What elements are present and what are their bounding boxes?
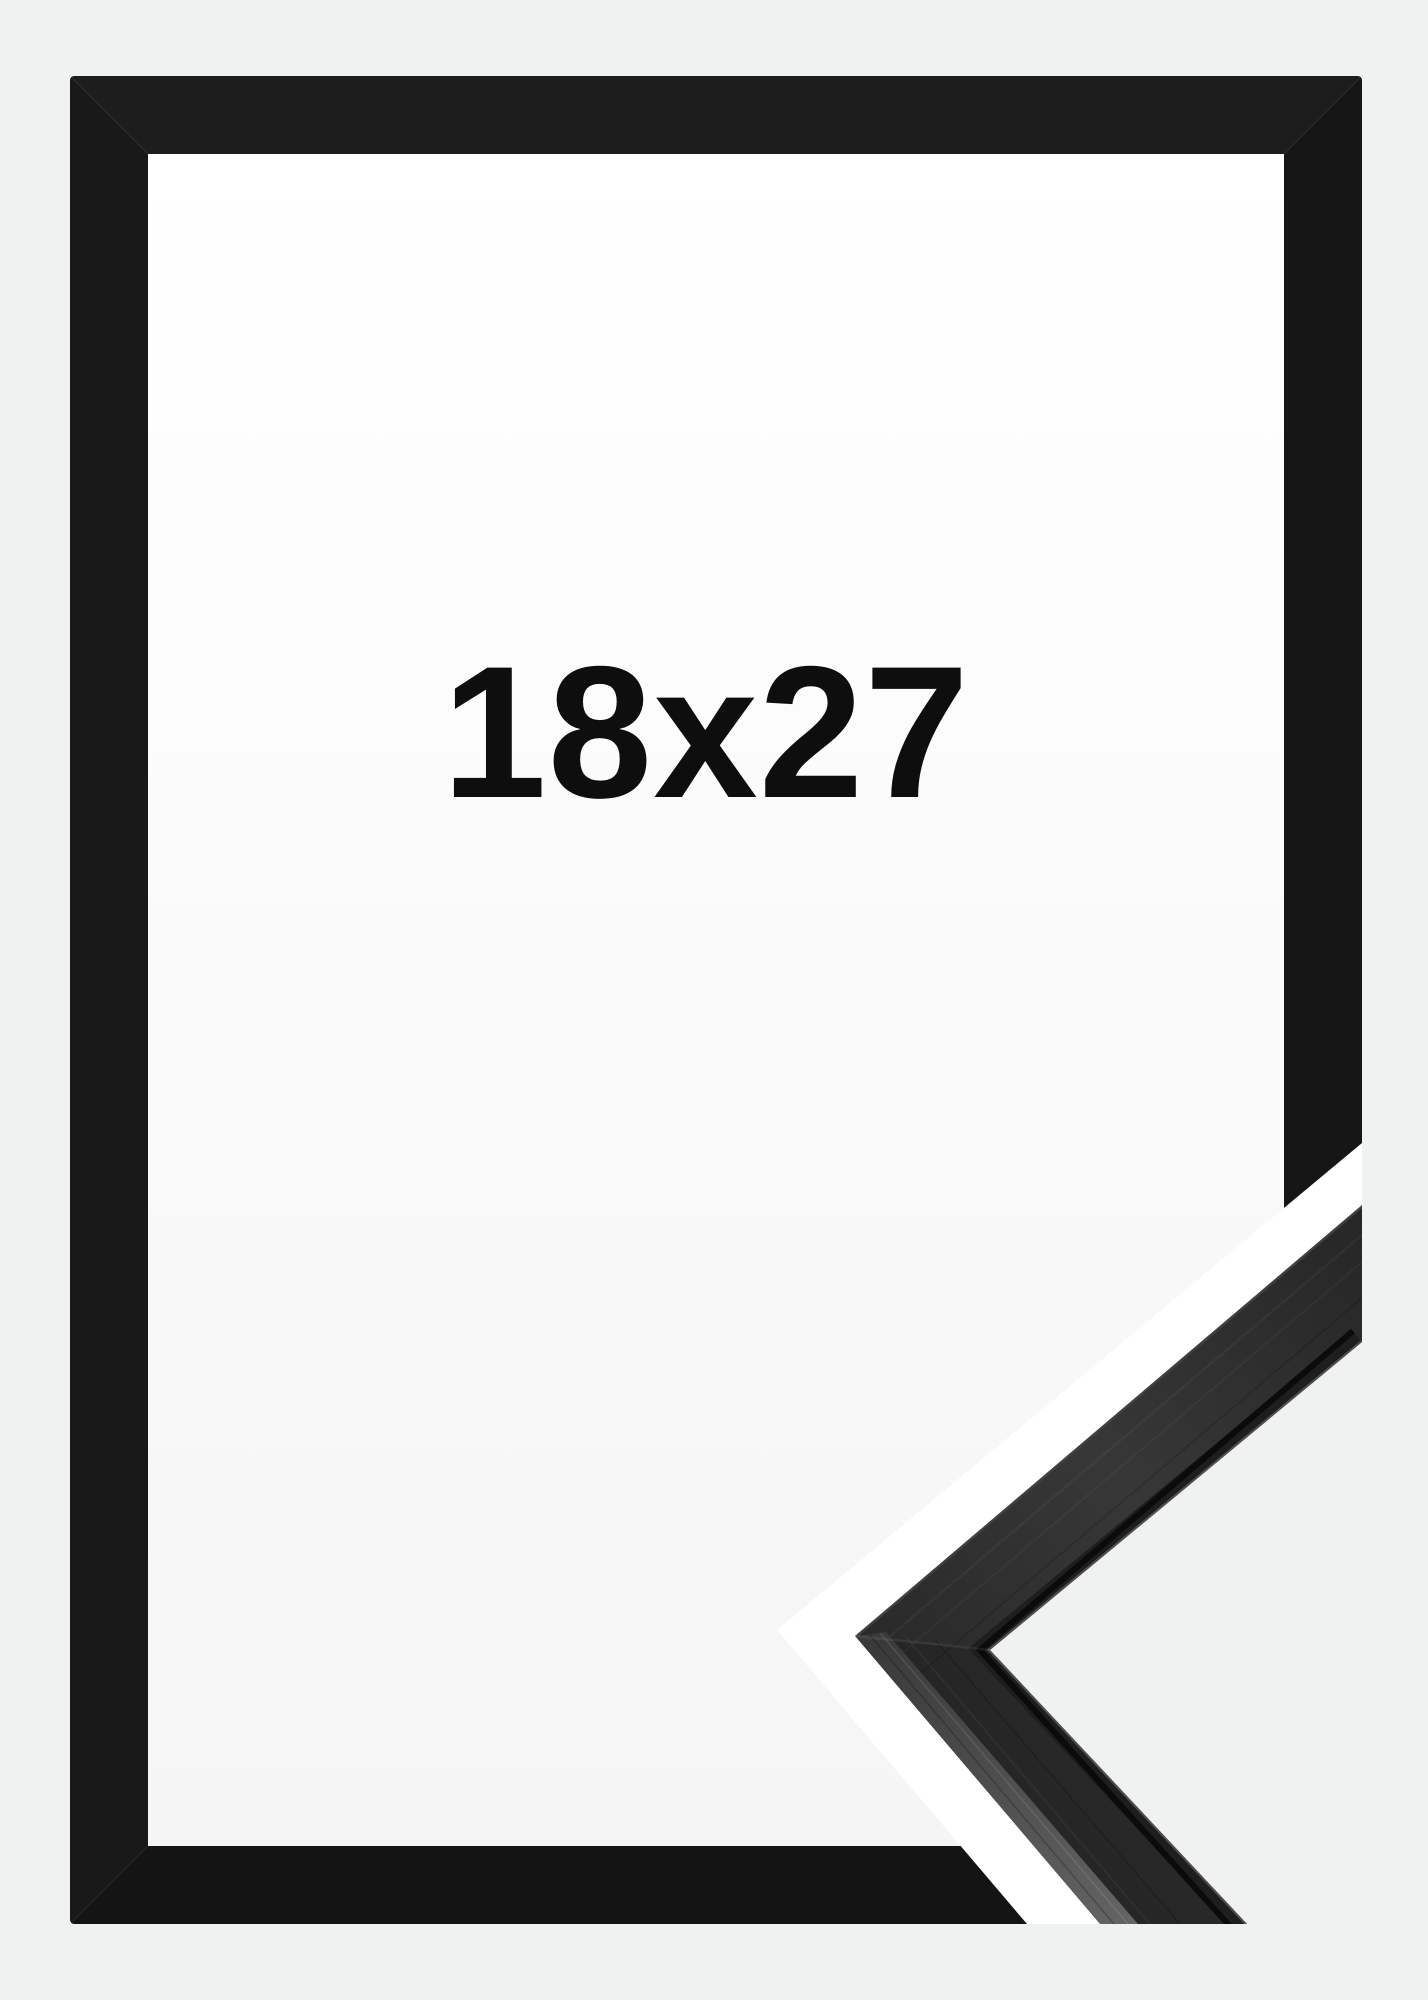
frame-left-rail-shading (70, 76, 148, 1924)
size-label: 18x27 (442, 627, 970, 837)
product-image-canvas: 18x27 (0, 0, 1428, 2000)
frame-product-photo: 18x27 (0, 0, 1428, 2000)
frame-top-rail-shading (70, 76, 1362, 154)
